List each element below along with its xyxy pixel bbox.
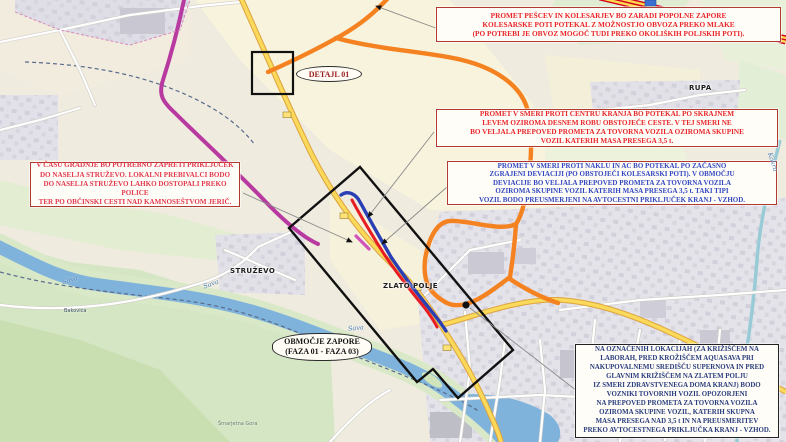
road-closure-plan: PROMET PEŠCEV IN KOLESARJEV BO ZARADI PO… bbox=[0, 0, 786, 442]
center-direction-note: PROMET V SMERI PROTI CENTRU KRANJA BO PO… bbox=[436, 109, 778, 147]
place-label-bakovica: Bakovica bbox=[64, 308, 86, 314]
place-label-smarjetna-gora: Šmarjetna Gora bbox=[218, 421, 257, 427]
marked-locations-note: NA OZNAČENIH LOKACIJAH (ZA KRIŽIŠČEM NA … bbox=[575, 344, 779, 438]
struzevo-closure-note: V ČASU GRADNJE BO POTREBNO ZAPRETI PRIKL… bbox=[30, 162, 240, 207]
pedestrian-detour-note: PROMET PEŠCEV IN KOLESARJEV BO ZARADI PO… bbox=[436, 7, 781, 42]
marked-location-dot bbox=[462, 301, 469, 308]
detail-01-label: DETAJL 01 bbox=[296, 66, 362, 82]
closure-area-label: OBMOČJE ZAPORE (FAZA 01 - FAZA 03) bbox=[272, 333, 372, 361]
river-label-sava-3: Sava bbox=[348, 323, 365, 333]
place-label-struzevo: STRUŽEVO bbox=[230, 267, 275, 275]
place-label-zlato-polje: ZLATO POLJE bbox=[383, 282, 438, 290]
place-label-rupa: RUPA bbox=[689, 84, 712, 92]
naklo-direction-note: PROMET V SMERI PROTI NAKLU IN AC BO POTE… bbox=[447, 161, 777, 205]
